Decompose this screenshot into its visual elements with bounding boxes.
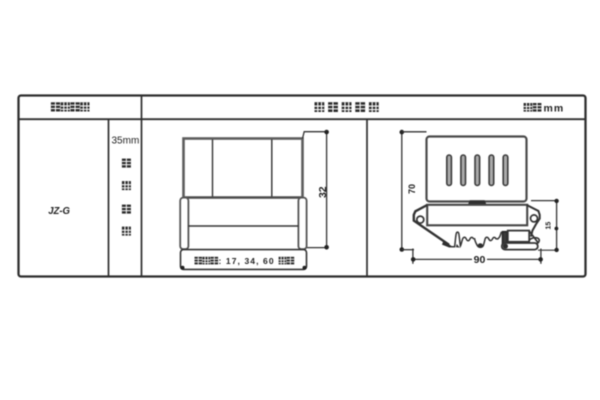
svg-text:35mm: 35mm <box>112 136 140 147</box>
svg-text:15: 15 <box>546 222 553 230</box>
svg-text:90: 90 <box>474 254 486 266</box>
svg-text:mm: mm <box>544 102 565 114</box>
svg-text:32: 32 <box>317 186 329 198</box>
svg-text:JZ-G: JZ-G <box>48 206 70 217</box>
svg-text:: 17, 34, 60: : 17, 34, 60 <box>219 256 275 266</box>
svg-text:70: 70 <box>407 184 417 194</box>
